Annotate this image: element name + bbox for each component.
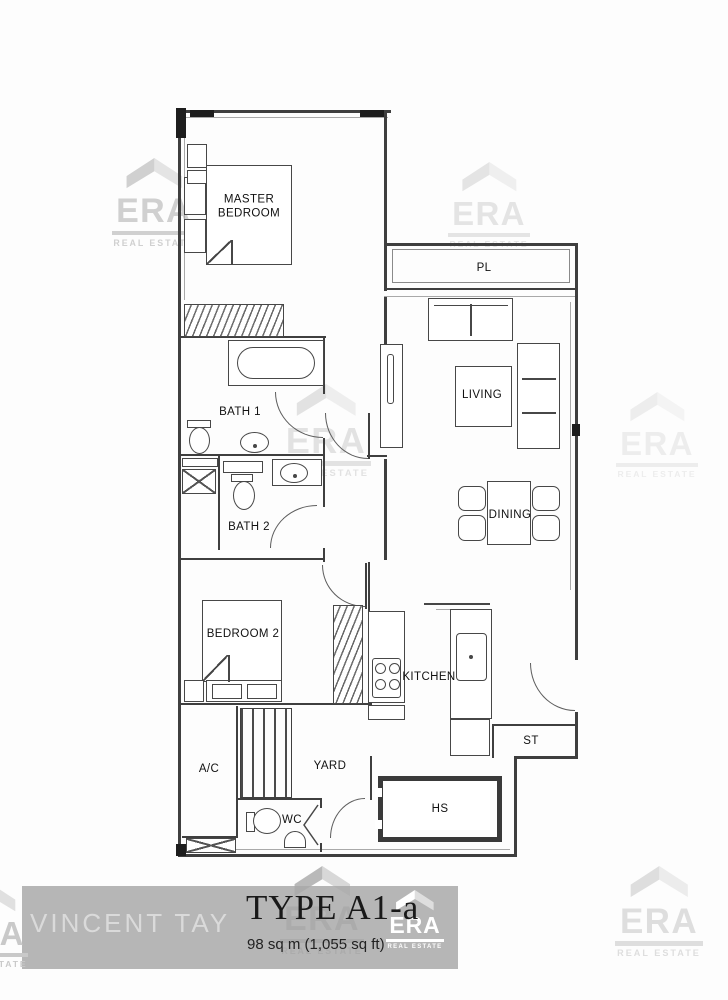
sofa-cushion-line xyxy=(470,304,472,336)
era-house-icon xyxy=(0,882,19,918)
service-shaft xyxy=(182,469,216,494)
room-label-ac: A/C xyxy=(199,762,219,776)
bed-fold-edge xyxy=(231,240,233,265)
vanity-shelf xyxy=(182,458,218,467)
door-arc-yard xyxy=(330,798,365,838)
wall-planter-top xyxy=(384,243,578,246)
wall-right-upper xyxy=(575,243,578,660)
hob-burner xyxy=(389,663,400,674)
column xyxy=(176,108,186,138)
ac-ledge-vent xyxy=(186,838,236,853)
wall-master-right xyxy=(384,110,387,246)
tv-panel xyxy=(387,354,394,404)
room-label-living: LIVING xyxy=(462,388,502,402)
wall-right-window-line xyxy=(570,302,571,590)
pillow xyxy=(247,684,277,699)
door-arc-entrance xyxy=(530,663,575,711)
column xyxy=(176,844,186,856)
era-watermark: ERA REAL ESTATE xyxy=(615,866,703,958)
room-label-yard: YARD xyxy=(314,759,347,773)
room-label-pl: PL xyxy=(477,261,492,275)
era-logo-text: ERA xyxy=(448,198,530,229)
room-label-hs: HS xyxy=(432,802,449,816)
wash-basin xyxy=(240,432,269,453)
hob-burner xyxy=(375,679,386,690)
room-label-master-bedroom: MASTER BEDROOM xyxy=(205,193,293,222)
era-logo-text: ERA xyxy=(616,428,698,459)
wall-planter-bottom xyxy=(384,288,578,290)
washer xyxy=(368,705,405,720)
wall-bath-divider xyxy=(180,454,325,456)
bathtub-inner xyxy=(237,347,315,379)
wall-store-top xyxy=(492,724,576,726)
dining-chair xyxy=(458,515,486,541)
wall-yard-right xyxy=(370,756,372,800)
floor-plan-page: ERA REAL ESTATE ERA REAL ESTATE ERA REAL… xyxy=(0,0,728,1000)
door-leaf-hall xyxy=(368,413,370,459)
wall-left-window-line xyxy=(184,132,185,300)
era-house-icon xyxy=(626,866,693,905)
era-house-icon xyxy=(122,158,187,195)
pillow xyxy=(212,684,242,699)
wall-wc-right-a xyxy=(320,798,322,808)
shelter-wall-notch xyxy=(375,788,382,797)
door-leaf-bedroom2 xyxy=(365,563,367,609)
room-label-st: ST xyxy=(523,734,539,748)
wall-store-bottom xyxy=(514,756,578,759)
wall-bath2-left xyxy=(218,454,220,550)
kitchen-counter-pass-line xyxy=(424,603,490,605)
era-watermark: ERA REAL ESTATE xyxy=(0,882,28,969)
era-logo-bar xyxy=(386,939,444,942)
door-arc-bath2 xyxy=(270,505,317,548)
wall-wc-right-b xyxy=(320,843,322,852)
sofa-cushion-line xyxy=(522,412,556,414)
unit-area-text: 98 sq m (1,055 sq ft) xyxy=(247,936,385,953)
bed-fold-line xyxy=(207,240,232,264)
wall-bath-right-b xyxy=(323,438,325,507)
bed-fold-edge xyxy=(228,655,230,682)
era-logo-subtext: REAL ESTATE xyxy=(386,944,444,950)
wall-planter-left xyxy=(384,243,387,291)
room-label-kitchen: KITCHEN xyxy=(402,670,455,684)
agent-watermark-text: VINCENT TAY xyxy=(30,908,230,939)
room-label-bath2: BATH 2 xyxy=(228,520,270,534)
wall-top-window-line xyxy=(185,117,388,118)
bed-foot-bench xyxy=(184,680,204,702)
toilet-bowl xyxy=(253,808,281,834)
sink-drain xyxy=(469,655,473,659)
wall-kitchen-left xyxy=(368,562,370,612)
shelter-wall-notch xyxy=(375,820,382,829)
wall-bedroom2-top xyxy=(180,558,325,560)
bed-fold-line xyxy=(203,655,228,681)
bifold-door xyxy=(301,804,319,846)
era-house-icon xyxy=(458,162,521,198)
kitchen-cabinet xyxy=(450,719,490,756)
room-label-wc: WC xyxy=(282,813,302,827)
wall-left xyxy=(178,110,181,857)
era-logo-bar xyxy=(0,953,28,957)
vanity-counter xyxy=(223,461,263,473)
column xyxy=(572,424,580,436)
basin-drain xyxy=(253,444,257,448)
toilet-bowl xyxy=(189,427,210,454)
sofa-back-line xyxy=(434,305,508,306)
wash-basin xyxy=(280,463,308,483)
master-wardrobe xyxy=(184,304,284,337)
closet-shelf xyxy=(187,144,207,168)
wall-hall-cross xyxy=(367,455,387,457)
era-logo-subtext: REAL ESTATE xyxy=(615,949,703,958)
hob-burner xyxy=(375,663,386,674)
column xyxy=(190,110,214,117)
era-watermark: ERA REAL ESTATE xyxy=(616,392,698,479)
nightstand xyxy=(184,219,206,253)
wall-ac-right xyxy=(236,706,238,836)
basin-drain xyxy=(293,474,297,478)
living-window-line xyxy=(384,296,578,297)
era-logo-text: ERA xyxy=(615,905,703,938)
wall-store-left xyxy=(492,724,494,758)
wall-wc-top xyxy=(238,798,322,800)
unit-type-title: TYPE A1-a xyxy=(246,888,419,928)
drying-rack xyxy=(240,708,292,798)
column xyxy=(360,110,384,117)
room-label-bath1: BATH 1 xyxy=(219,405,261,419)
era-logo-subtext: REAL ESTATE xyxy=(616,470,698,479)
era-logo-bar xyxy=(616,463,698,467)
room-label-dining: DINING xyxy=(489,508,532,522)
closet-shelf xyxy=(187,170,207,184)
era-logo-bar xyxy=(448,233,530,237)
toilet-bowl xyxy=(233,481,255,510)
sofa-two-seater xyxy=(517,343,560,449)
hob-burner xyxy=(389,679,400,690)
dining-chair xyxy=(458,486,486,511)
wall-right-lower xyxy=(575,712,578,759)
room-label-bedroom2: BEDROOM 2 xyxy=(207,627,280,641)
dining-chair xyxy=(532,486,560,511)
door-arc-bedroom2 xyxy=(322,565,365,607)
dining-chair xyxy=(532,515,560,541)
sofa-cushion-line xyxy=(522,378,556,380)
era-logo-text: ERA xyxy=(0,918,28,949)
era-watermark: ERA REAL ESTATE xyxy=(448,162,530,249)
wall-hall-right-b xyxy=(384,459,387,560)
era-logo-bar xyxy=(615,941,703,946)
wall-right-bottom xyxy=(514,756,517,857)
era-house-icon xyxy=(626,392,689,428)
era-logo-subtext: REAL ESTATE xyxy=(0,960,28,969)
wall-bottom xyxy=(178,854,517,857)
bedroom2-wardrobe xyxy=(333,605,363,704)
